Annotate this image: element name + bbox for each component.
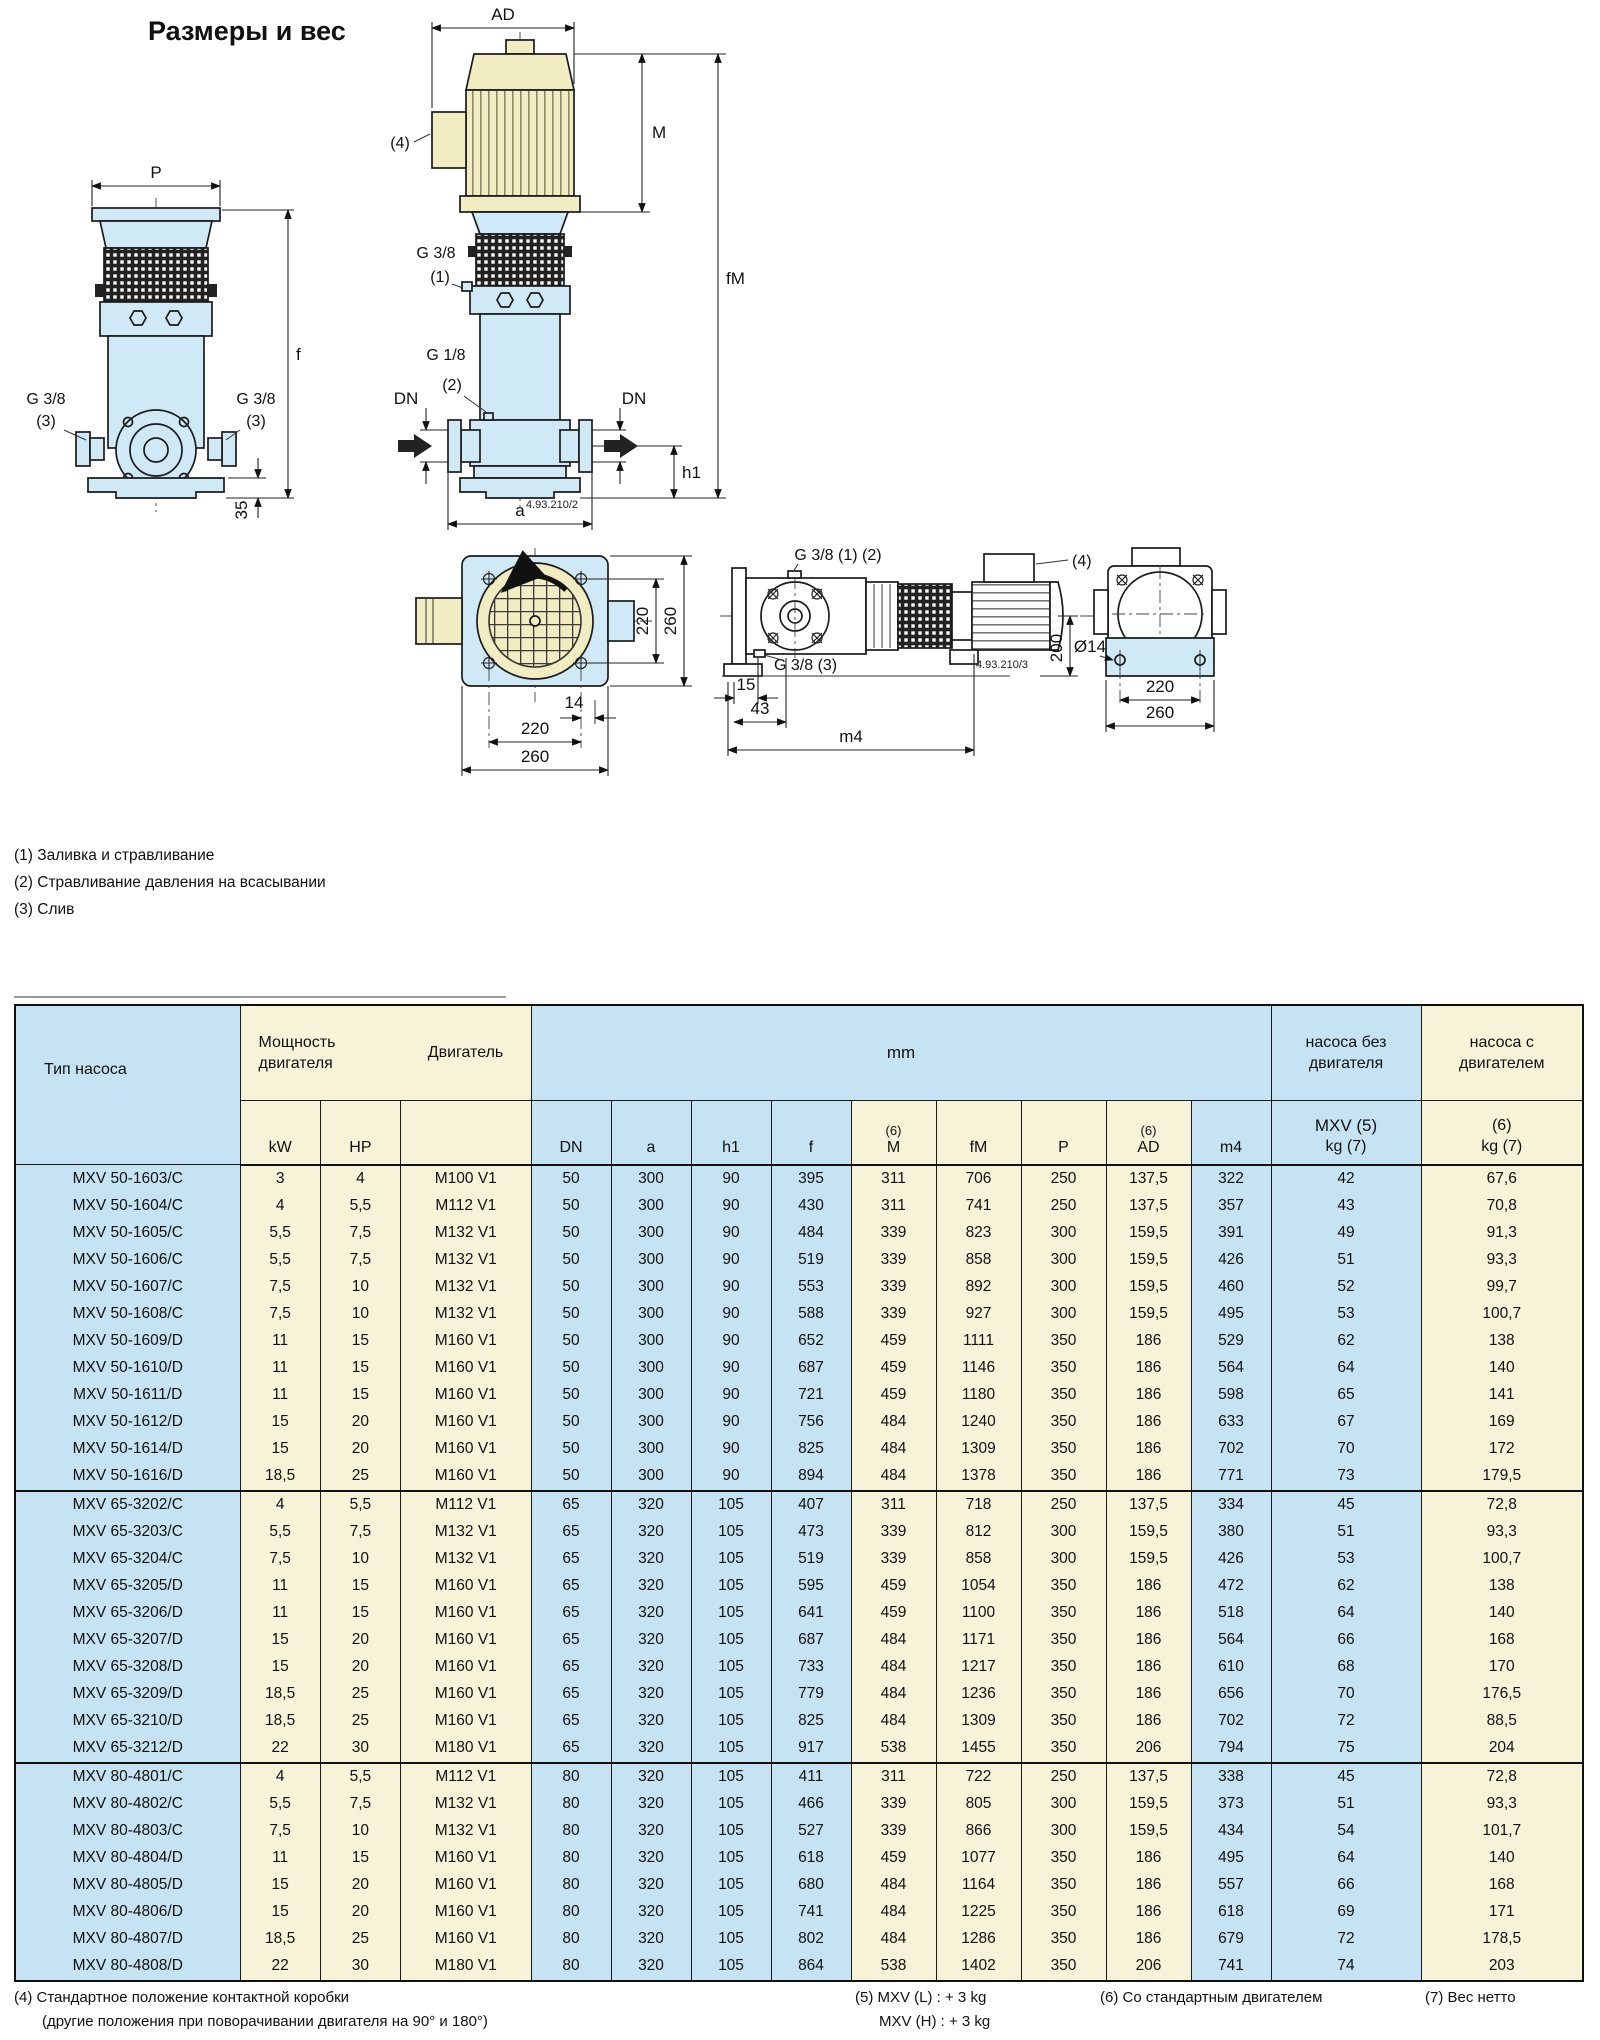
table-cell: 320 — [611, 1763, 691, 1791]
table-cell: 553 — [771, 1274, 851, 1301]
table-cell: 320 — [611, 1491, 691, 1519]
table-cell: 1164 — [936, 1872, 1021, 1899]
table-cell: 300 — [1021, 1301, 1106, 1328]
table-cell: 15 — [240, 1436, 320, 1463]
suction-vent-ref: (2) — [442, 377, 462, 394]
table-cell: 137,5 — [1106, 1165, 1191, 1193]
table-cell: 50 — [531, 1165, 611, 1193]
table-cell: 105 — [691, 1845, 771, 1872]
header-col-ad-label: AD — [1107, 1139, 1191, 1157]
table-cell: 15 — [320, 1573, 400, 1600]
table-cell: 373 — [1191, 1791, 1271, 1818]
table-cell: 1077 — [936, 1845, 1021, 1872]
table-cell: 538 — [851, 1953, 936, 1981]
table-cell: 90 — [691, 1165, 771, 1193]
table-cell: 350 — [1021, 1409, 1106, 1436]
header-with-motor: насоса с двигателем — [1421, 1005, 1583, 1100]
table-cell: 5,5 — [240, 1247, 320, 1274]
table-cell: 7,5 — [240, 1301, 320, 1328]
table-cell: M160 V1 — [401, 1872, 531, 1899]
table-cell: 1180 — [936, 1382, 1021, 1409]
table-cell: 484 — [851, 1708, 936, 1735]
table-cell: 30 — [320, 1953, 400, 1981]
footnote-4: (4) Стандартное положение контактной кор… — [14, 1986, 488, 2034]
table-cell: 652 — [771, 1328, 851, 1355]
table-cell: 472 — [1191, 1573, 1271, 1600]
table-cell: 1240 — [936, 1409, 1021, 1436]
table-cell: 186 — [1106, 1899, 1191, 1926]
table-cell: 311 — [851, 1763, 936, 1791]
table-cell: M132 V1 — [401, 1220, 531, 1247]
drain-label-right: G 3/8 — [236, 391, 275, 408]
fill-vent-label: G 3/8 — [416, 245, 455, 262]
dim-260-vert: 260 — [661, 607, 680, 635]
table-cell: 250 — [1021, 1193, 1106, 1220]
table-cell: M132 V1 — [401, 1301, 531, 1328]
table-cell: 186 — [1106, 1382, 1191, 1409]
table-cell: 66 — [1271, 1627, 1421, 1654]
table-cell: 15 — [240, 1899, 320, 1926]
table-cell: 459 — [851, 1600, 936, 1627]
table-cell: 67 — [1271, 1409, 1421, 1436]
table-cell: 484 — [851, 1463, 936, 1491]
table-cell: 3 — [240, 1165, 320, 1193]
header-pump-type: Тип насоса — [15, 1005, 240, 1165]
table-cell: 339 — [851, 1220, 936, 1247]
table-row: MXV 50-1610/D1115M160 V15030090687459114… — [15, 1355, 1583, 1382]
table-cell: 300 — [611, 1301, 691, 1328]
pump-type-cell: MXV 50-1612/D — [15, 1409, 240, 1436]
table-cell: 430 — [771, 1193, 851, 1220]
table-cell: 610 — [1191, 1654, 1271, 1681]
table-cell: 320 — [611, 1681, 691, 1708]
table-cell: 203 — [1421, 1953, 1583, 1981]
table-cell: 618 — [771, 1845, 851, 1872]
table-cell: 5,5 — [320, 1763, 400, 1791]
table-cell: 1217 — [936, 1654, 1021, 1681]
table-cell: 519 — [771, 1247, 851, 1274]
table-cell: 519 — [771, 1546, 851, 1573]
table-cell: 320 — [611, 1573, 691, 1600]
table-cell: 186 — [1106, 1436, 1191, 1463]
table-cell: 1111 — [936, 1328, 1021, 1355]
table-cell: 7,5 — [320, 1247, 400, 1274]
table-cell: 484 — [851, 1627, 936, 1654]
table-row: MXV 65-3207/D1520M160 V16532010568748411… — [15, 1627, 1583, 1654]
header-col-m: (6) M — [851, 1100, 936, 1165]
table-cell: 15 — [240, 1627, 320, 1654]
drain-label-left: G 3/8 — [26, 391, 65, 408]
table-row: MXV 65-3209/D18,525M160 V165320105779484… — [15, 1681, 1583, 1708]
table-cell: 186 — [1106, 1409, 1191, 1436]
table-cell: 1286 — [936, 1926, 1021, 1953]
table-cell: 320 — [611, 1708, 691, 1735]
table-cell: 50 — [531, 1193, 611, 1220]
table-cell: 65 — [531, 1654, 611, 1681]
table-cell: 65 — [531, 1708, 611, 1735]
table-cell: 80 — [531, 1953, 611, 1981]
table-cell: 50 — [531, 1409, 611, 1436]
table-cell: 1100 — [936, 1600, 1021, 1627]
table-cell: 484 — [851, 1436, 936, 1463]
table-cell: 1225 — [936, 1899, 1021, 1926]
table-cell: M160 V1 — [401, 1600, 531, 1627]
table-row: MXV 65-3210/D18,525M160 V165320105825484… — [15, 1708, 1583, 1735]
table-cell: 557 — [1191, 1872, 1271, 1899]
pump-type-cell: MXV 65-3210/D — [15, 1708, 240, 1735]
table-cell: 741 — [1191, 1953, 1271, 1981]
table-cell: 65 — [531, 1491, 611, 1519]
pump-type-cell: MXV 50-1604/C — [15, 1193, 240, 1220]
table-cell: 350 — [1021, 1328, 1106, 1355]
table-cell: 10 — [320, 1818, 400, 1845]
table-cell: 168 — [1421, 1872, 1583, 1899]
table-row: MXV 50-1611/D1115M160 V15030090721459118… — [15, 1382, 1583, 1409]
table-row: MXV 65-3203/C5,57,5M132 V165320105473339… — [15, 1519, 1583, 1546]
pump-type-cell: MXV 80-4806/D — [15, 1899, 240, 1926]
table-body: MXV 50-1603/C34M100 V1503009039531170625… — [15, 1165, 1583, 1981]
note-3: (3) Слив — [14, 896, 326, 923]
header-col-m-label: M — [852, 1139, 936, 1157]
table-cell: 137,5 — [1106, 1193, 1191, 1220]
header-kg-with: (6) kg (7) — [1421, 1100, 1583, 1165]
table-cell: 823 — [936, 1220, 1021, 1247]
table-cell: 10 — [320, 1301, 400, 1328]
table-cell: 68 — [1271, 1654, 1421, 1681]
table-cell: 894 — [771, 1463, 851, 1491]
table-cell: 159,5 — [1106, 1791, 1191, 1818]
header-kg-without: MXV (5) kg (7) — [1271, 1100, 1421, 1165]
table-cell: 62 — [1271, 1573, 1421, 1600]
pump-type-cell: MXV 50-1609/D — [15, 1328, 240, 1355]
table-cell: 250 — [1021, 1763, 1106, 1791]
table-cell: 70 — [1271, 1681, 1421, 1708]
table-cell: 7,5 — [320, 1791, 400, 1818]
table-cell: 300 — [1021, 1247, 1106, 1274]
catalog-page: Размеры и вес — [0, 0, 1600, 2040]
drawing-code-vertical: 4.93.210/2 — [526, 499, 578, 511]
header-col-m4: m4 — [1191, 1100, 1271, 1165]
table-cell: 65 — [531, 1546, 611, 1573]
dim-200: 200 — [1047, 634, 1066, 662]
table-cell: 459 — [851, 1382, 936, 1409]
table-cell: 137,5 — [1106, 1763, 1191, 1791]
header-mm: mm — [531, 1005, 1271, 1100]
table-cell: 339 — [851, 1247, 936, 1274]
table-cell: 518 — [1191, 1600, 1271, 1627]
table-cell: 300 — [1021, 1791, 1106, 1818]
table-cell: 866 — [936, 1818, 1021, 1845]
table-cell: 186 — [1106, 1600, 1191, 1627]
table-cell: 65 — [531, 1735, 611, 1763]
table-cell: 50 — [531, 1436, 611, 1463]
table-cell: 15 — [240, 1872, 320, 1899]
table-cell: 1054 — [936, 1573, 1021, 1600]
table-cell: 30 — [320, 1735, 400, 1763]
table-cell: 527 — [771, 1818, 851, 1845]
table-cell: 11 — [240, 1845, 320, 1872]
pump-type-cell: MXV 65-3203/C — [15, 1519, 240, 1546]
table-cell: 459 — [851, 1573, 936, 1600]
table-cell: 100,7 — [1421, 1546, 1583, 1573]
table-cell: 62 — [1271, 1328, 1421, 1355]
header-col-dn: DN — [531, 1100, 611, 1165]
table-cell: 186 — [1106, 1573, 1191, 1600]
table-cell: 407 — [771, 1491, 851, 1519]
pump-type-cell: MXV 50-1608/C — [15, 1301, 240, 1328]
table-cell: 52 — [1271, 1274, 1421, 1301]
table-cell: 350 — [1021, 1654, 1106, 1681]
table-cell: 105 — [691, 1926, 771, 1953]
table-cell: 320 — [611, 1627, 691, 1654]
pump-type-cell: MXV 65-3208/D — [15, 1654, 240, 1681]
table-cell: 426 — [1191, 1247, 1271, 1274]
table-cell: 15 — [320, 1355, 400, 1382]
table-cell: 50 — [531, 1220, 611, 1247]
pump-type-cell: MXV 50-1616/D — [15, 1463, 240, 1491]
header-kg-with-l1: (6) — [1422, 1115, 1583, 1136]
table-cell: 350 — [1021, 1573, 1106, 1600]
table-cell: M160 V1 — [401, 1355, 531, 1382]
table-cell: 186 — [1106, 1627, 1191, 1654]
table-cell: M160 V1 — [401, 1382, 531, 1409]
table-cell: 137,5 — [1106, 1491, 1191, 1519]
table-cell: 138 — [1421, 1328, 1583, 1355]
table-cell: 917 — [771, 1735, 851, 1763]
table-cell: 20 — [320, 1436, 400, 1463]
dim-43: 43 — [751, 699, 770, 718]
table-cell: 339 — [851, 1791, 936, 1818]
table-cell: 15 — [320, 1600, 400, 1627]
table-cell: 186 — [1106, 1355, 1191, 1382]
footnote-4-line2: (другие положения при поворачивании двиг… — [14, 2010, 488, 2034]
table-row: MXV 50-1603/C34M100 V1503009039531170625… — [15, 1165, 1583, 1193]
table-cell: 11 — [240, 1328, 320, 1355]
table-cell: 927 — [936, 1301, 1021, 1328]
table-cell: 138 — [1421, 1573, 1583, 1600]
table-cell: 320 — [611, 1735, 691, 1763]
pump-type-cell: MXV 50-1603/C — [15, 1165, 240, 1193]
table-cell: 350 — [1021, 1463, 1106, 1491]
table-cell: 311 — [851, 1165, 936, 1193]
table-cell: M160 V1 — [401, 1681, 531, 1708]
dim-a: a — [515, 501, 525, 520]
header-col-ad-note: (6) — [1107, 1122, 1191, 1139]
table-cell: 4 — [240, 1763, 320, 1791]
dim-220-horiz: 220 — [521, 719, 549, 738]
table-cell: 88,5 — [1421, 1708, 1583, 1735]
pump-type-cell: MXV 65-3206/D — [15, 1600, 240, 1627]
table-cell: 702 — [1191, 1436, 1271, 1463]
table-cell: 339 — [851, 1519, 936, 1546]
table-cell: 50 — [531, 1355, 611, 1382]
header-motor-empty — [401, 1100, 531, 1165]
table-cell: 90 — [691, 1355, 771, 1382]
table-cell: 178,5 — [1421, 1926, 1583, 1953]
table-cell: 339 — [851, 1546, 936, 1573]
table-cell: 105 — [691, 1627, 771, 1654]
note-2: (2) Стравливание давления на всасывании — [14, 869, 326, 896]
table-cell: 771 — [1191, 1463, 1271, 1491]
table-cell: 140 — [1421, 1845, 1583, 1872]
table-cell: 186 — [1106, 1926, 1191, 1953]
table-cell: 459 — [851, 1845, 936, 1872]
table-cell: 80 — [531, 1872, 611, 1899]
header-power: Мощность двигателя — [241, 1032, 401, 1074]
table-cell: 18,5 — [240, 1463, 320, 1491]
table-cell: 334 — [1191, 1491, 1271, 1519]
table-cell: M160 V1 — [401, 1627, 531, 1654]
table-cell: 80 — [531, 1899, 611, 1926]
table-cell: 7,5 — [240, 1818, 320, 1845]
table-cell: 100,7 — [1421, 1301, 1583, 1328]
footnote-5: (5) MXV (L) : + 3 kg MXV (H) : + 3 kg — [855, 1986, 990, 2034]
table-cell: 484 — [851, 1681, 936, 1708]
table-cell: 105 — [691, 1681, 771, 1708]
table-cell: 320 — [611, 1926, 691, 1953]
table-cell: 722 — [936, 1763, 1021, 1791]
table-cell: 105 — [691, 1818, 771, 1845]
table-cell: 495 — [1191, 1301, 1271, 1328]
table-row: MXV 50-1605/C5,57,5M132 V150300904843398… — [15, 1220, 1583, 1247]
table-cell: 105 — [691, 1899, 771, 1926]
table-cell: 320 — [611, 1872, 691, 1899]
table-cell: 741 — [771, 1899, 851, 1926]
table-cell: 320 — [611, 1818, 691, 1845]
pump-type-cell: MXV 50-1605/C — [15, 1220, 240, 1247]
footnote-4-line1: (4) Стандартное положение контактной кор… — [14, 1986, 488, 2010]
table-cell: 311 — [851, 1193, 936, 1220]
table-cell: 825 — [771, 1708, 851, 1735]
table-cell: 1402 — [936, 1953, 1021, 1981]
dim-220-vert: 220 — [633, 607, 652, 635]
dim-15: 15 — [737, 675, 756, 694]
dim-35: 35 — [232, 501, 251, 520]
header-col-ad: (6) AD — [1106, 1100, 1191, 1165]
table-cell: 892 — [936, 1274, 1021, 1301]
pump-type-cell: MXV 65-3204/C — [15, 1546, 240, 1573]
table-cell: 18,5 — [240, 1681, 320, 1708]
table-cell: 105 — [691, 1600, 771, 1627]
header-col-f: f — [771, 1100, 851, 1165]
table-cell: 805 — [936, 1791, 1021, 1818]
pump-type-cell: MXV 65-3207/D — [15, 1627, 240, 1654]
pump-type-cell: MXV 80-4805/D — [15, 1872, 240, 1899]
table-cell: 411 — [771, 1763, 851, 1791]
table-cell: 186 — [1106, 1845, 1191, 1872]
header-with-motor-l2: двигателем — [1422, 1053, 1583, 1074]
table-cell: 159,5 — [1106, 1546, 1191, 1573]
table-cell: 168 — [1421, 1627, 1583, 1654]
table-cell: 65 — [531, 1573, 611, 1600]
inlet-flow-arrow-icon — [398, 434, 432, 458]
table-cell: 1455 — [936, 1735, 1021, 1763]
table-row: MXV 50-1609/D1115M160 V15030090652459111… — [15, 1328, 1583, 1355]
table-cell: 10 — [320, 1274, 400, 1301]
table-cell: 99,7 — [1421, 1274, 1583, 1301]
pump-type-cell: MXV 50-1614/D — [15, 1436, 240, 1463]
table-cell: 564 — [1191, 1627, 1271, 1654]
table-cell: 69 — [1271, 1899, 1421, 1926]
table-cell: 320 — [611, 1791, 691, 1818]
table-cell: 70 — [1271, 1436, 1421, 1463]
table-cell: 64 — [1271, 1600, 1421, 1627]
table-cell: 4 — [240, 1491, 320, 1519]
table-cell: 687 — [771, 1627, 851, 1654]
table-cell: 80 — [531, 1791, 611, 1818]
table-cell: 105 — [691, 1491, 771, 1519]
table-cell: 11 — [240, 1573, 320, 1600]
dim-260-end: 260 — [1146, 703, 1174, 722]
table-cell: 90 — [691, 1328, 771, 1355]
dim-dia14: Ø14 — [1074, 637, 1106, 656]
table-cell: 350 — [1021, 1681, 1106, 1708]
table-cell: M160 V1 — [401, 1899, 531, 1926]
header-hp: HP — [320, 1100, 400, 1165]
table-cell: 320 — [611, 1654, 691, 1681]
suction-vent-label: G 1/8 — [426, 347, 465, 364]
table-cell: 350 — [1021, 1382, 1106, 1409]
table-cell: 300 — [611, 1463, 691, 1491]
table-cell: 45 — [1271, 1763, 1421, 1791]
dimensions-weight-table: Тип насоса Мощность двигателя Двигатель … — [14, 1004, 1584, 1982]
table-cell: 66 — [1271, 1872, 1421, 1899]
table-cell: 171 — [1421, 1899, 1583, 1926]
table-cell: 105 — [691, 1519, 771, 1546]
table-cell: 105 — [691, 1708, 771, 1735]
drain-ref-right: (3) — [246, 413, 266, 430]
table-cell: 300 — [611, 1165, 691, 1193]
table-cell: 300 — [611, 1409, 691, 1436]
end-view-drawing: Ø14 220 260 — [1074, 548, 1226, 732]
table-cell: 65 — [1271, 1382, 1421, 1409]
table-cell: 484 — [851, 1899, 936, 1926]
table-cell: 186 — [1106, 1463, 1191, 1491]
pump-type-cell: MXV 80-4807/D — [15, 1926, 240, 1953]
table-cell: 858 — [936, 1546, 1021, 1573]
table-cell: 794 — [1191, 1735, 1271, 1763]
table-cell: 186 — [1106, 1328, 1191, 1355]
pump-type-cell: MXV 80-4803/C — [15, 1818, 240, 1845]
drawing-notes: (1) Заливка и стравливание (2) Стравлива… — [14, 842, 326, 923]
front-view-drawing: P f G 3/8 (3) G 3/8 (3) 35 — [26, 163, 301, 519]
table-cell: 159,5 — [1106, 1519, 1191, 1546]
table-cell: 300 — [611, 1193, 691, 1220]
pump-type-cell: MXV 65-3212/D — [15, 1735, 240, 1763]
table-cell: 18,5 — [240, 1708, 320, 1735]
table-cell: 595 — [771, 1573, 851, 1600]
header-power-motor: Мощность двигателя Двигатель — [240, 1005, 531, 1100]
dim-dn-right: DN — [622, 389, 647, 408]
table-cell: 350 — [1021, 1355, 1106, 1382]
table-cell: 105 — [691, 1573, 771, 1600]
table-cell: 54 — [1271, 1818, 1421, 1845]
table-cell: 80 — [531, 1763, 611, 1791]
table-cell: 169 — [1421, 1409, 1583, 1436]
table-row: MXV 80-4805/D1520M160 V18032010568048411… — [15, 1872, 1583, 1899]
dim-f: f — [296, 345, 301, 364]
table-row: MXV 50-1606/C5,57,5M132 V150300905193398… — [15, 1247, 1583, 1274]
table-cell: 80 — [531, 1818, 611, 1845]
table-cell: 300 — [1021, 1818, 1106, 1845]
section-divider — [14, 996, 506, 998]
table-cell: 186 — [1106, 1681, 1191, 1708]
table-cell: M132 V1 — [401, 1247, 531, 1274]
table-cell: 20 — [320, 1627, 400, 1654]
table-cell: 51 — [1271, 1519, 1421, 1546]
table-cell: 70,8 — [1421, 1193, 1583, 1220]
table-cell: 11 — [240, 1355, 320, 1382]
